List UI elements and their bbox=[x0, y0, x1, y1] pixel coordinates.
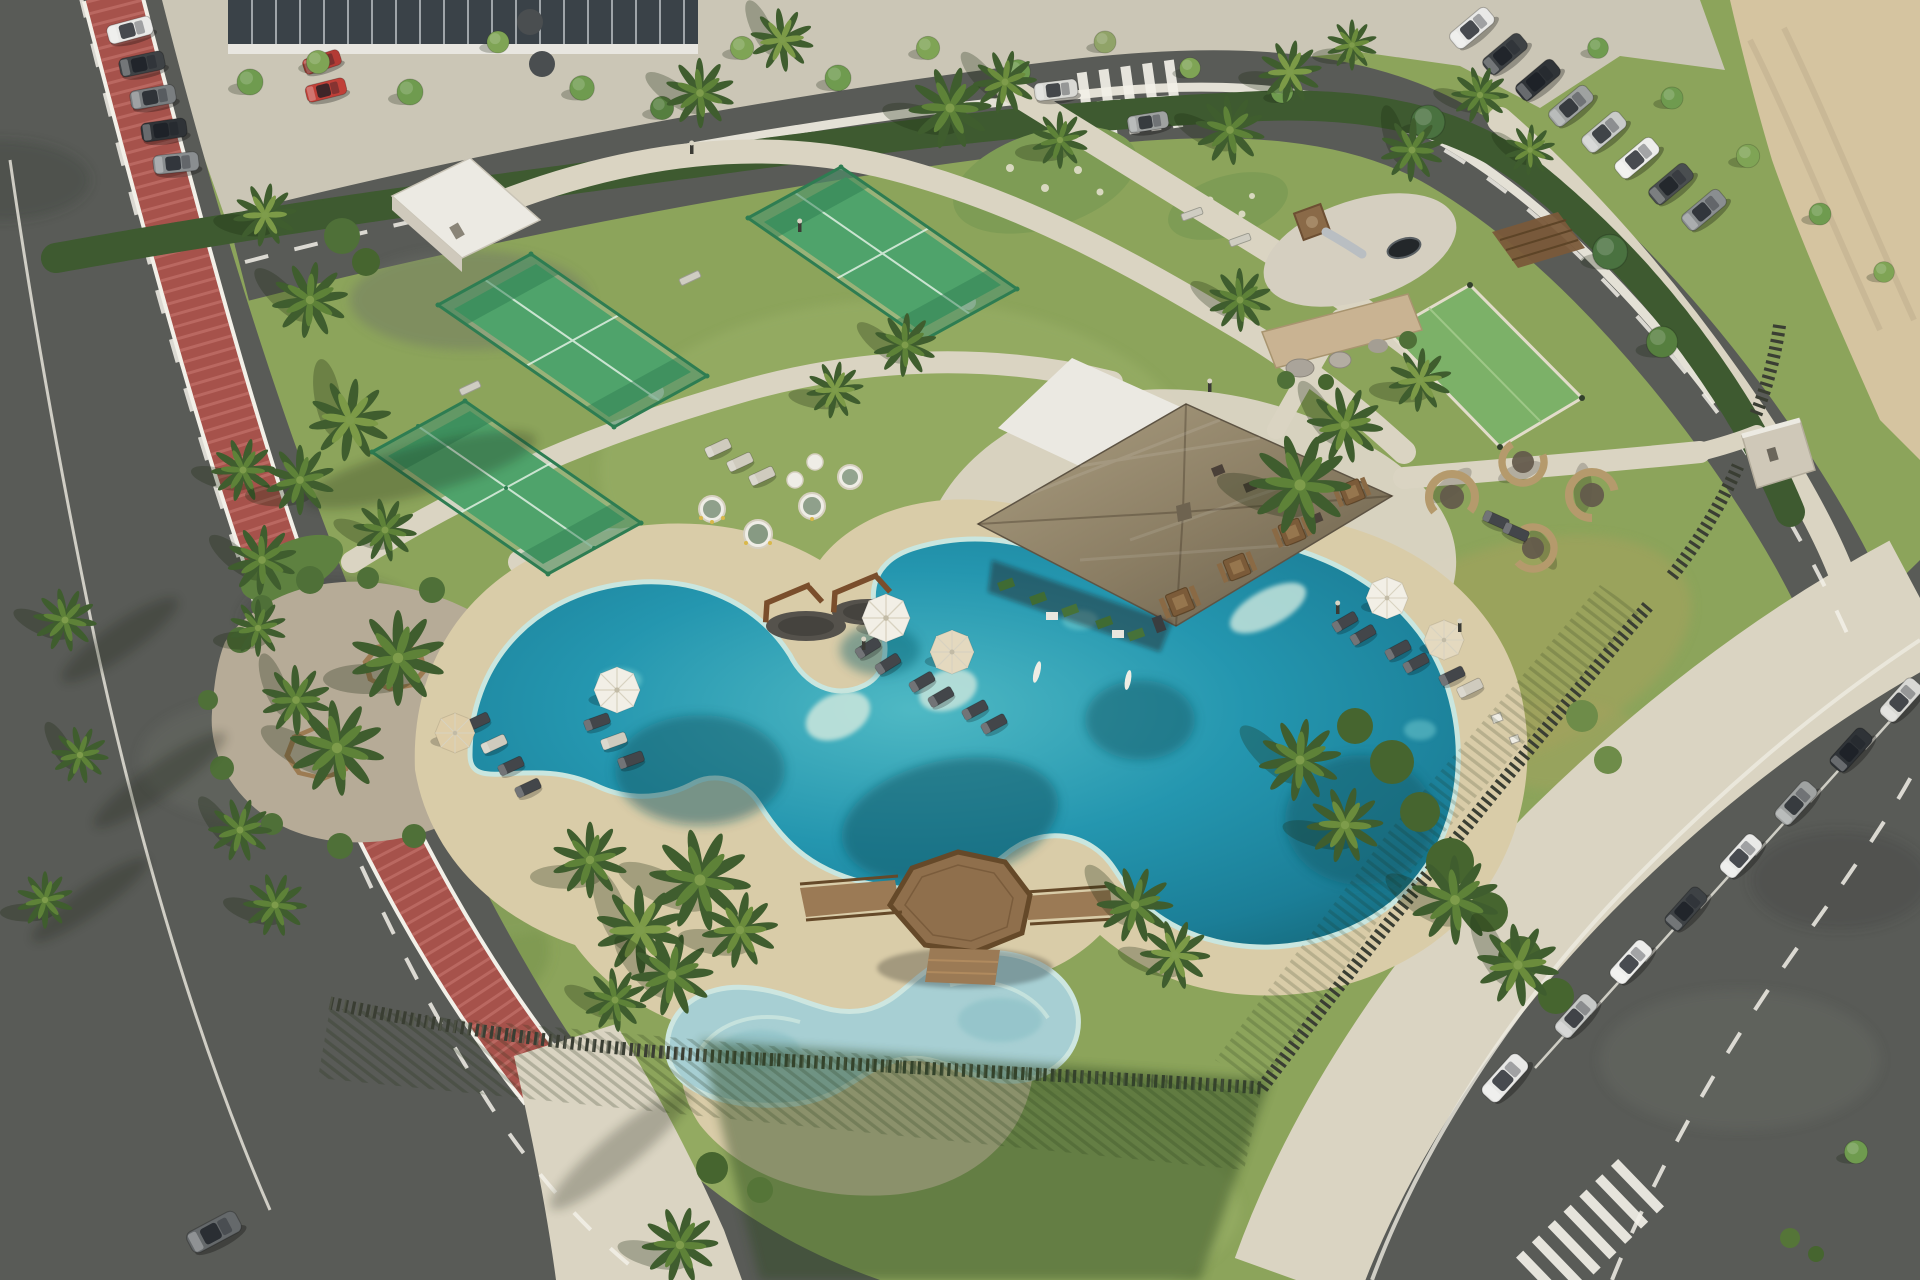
terrace-parasol bbox=[517, 9, 543, 35]
building-fascia bbox=[228, 44, 698, 54]
aerial-render bbox=[0, 0, 1920, 1280]
terrace-parasol bbox=[529, 51, 555, 77]
resort-park-scene bbox=[0, 0, 1920, 1280]
building-glass-facade bbox=[228, 0, 698, 46]
deck-steps bbox=[925, 948, 1000, 985]
